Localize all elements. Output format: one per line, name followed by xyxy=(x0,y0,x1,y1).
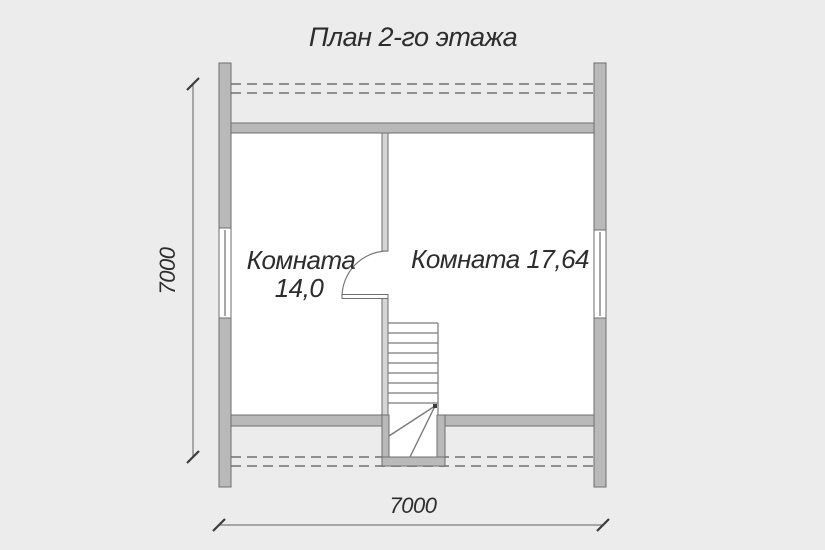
floor-plan-drawing: 7000 7000 План 2-го этажа Комната 14,0 К… xyxy=(0,0,825,550)
door-leaf xyxy=(342,295,388,299)
interior-wall-top xyxy=(231,123,594,133)
stair-winder-pivot xyxy=(433,404,437,408)
interior-wall-bottom-right xyxy=(445,415,594,426)
room-1-area: 14,0 xyxy=(275,273,325,303)
interior-wall-bottom-left xyxy=(231,415,382,426)
floor-plan-page: 7000 7000 План 2-го этажа Комната 14,0 К… xyxy=(0,0,825,550)
plan-title: План 2-го этажа xyxy=(309,22,518,52)
stair-shaft-wall-bottom xyxy=(382,457,445,466)
dimension-vertical: 7000 xyxy=(155,246,180,294)
room-2-label: Комната 17,64 xyxy=(411,244,589,274)
partition-wall-upper xyxy=(382,133,388,251)
window-left xyxy=(219,228,231,318)
partition-wall-lower xyxy=(382,298,388,415)
dimension-horizontal: 7000 xyxy=(390,493,438,518)
window-right xyxy=(594,230,606,318)
stair-shaft xyxy=(382,415,445,466)
room-1-label: Комната xyxy=(247,245,356,275)
